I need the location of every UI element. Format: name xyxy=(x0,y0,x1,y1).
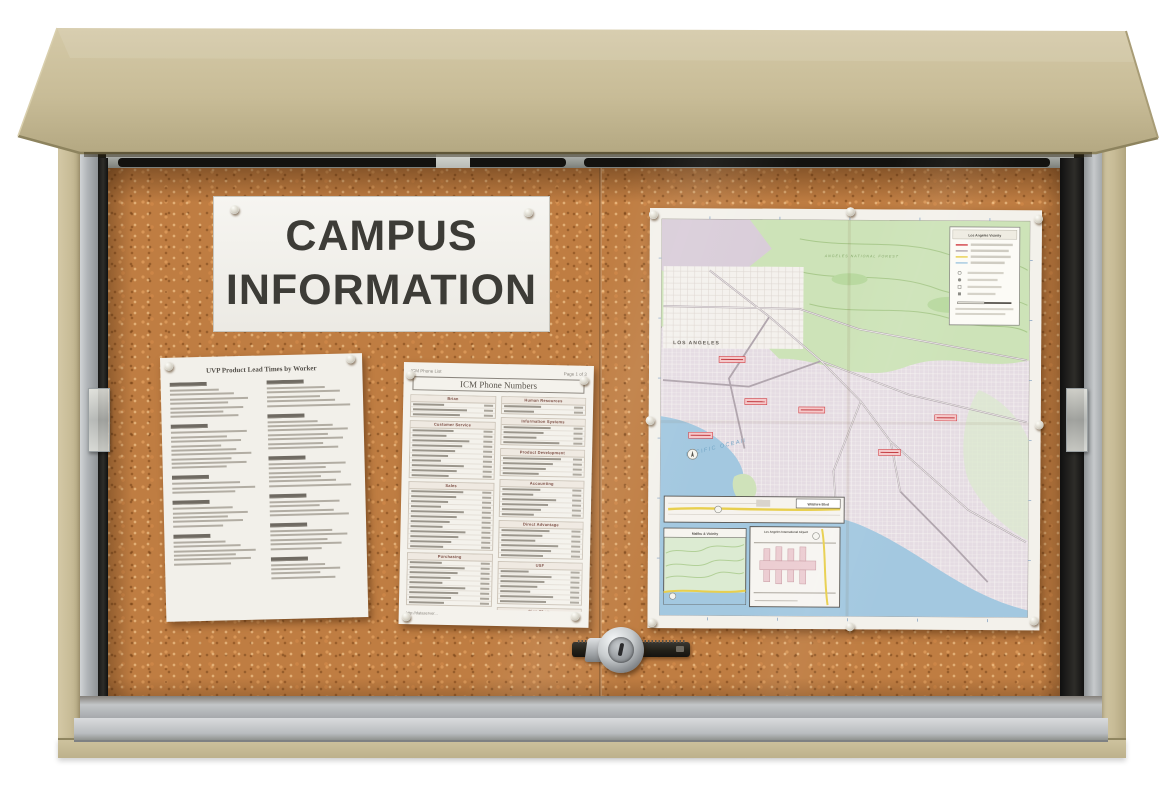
text-group xyxy=(172,499,260,528)
text-line xyxy=(170,414,238,418)
text-line xyxy=(170,389,219,392)
bottom-door-track xyxy=(80,696,1102,718)
text-line xyxy=(173,507,233,510)
text-line xyxy=(270,504,320,507)
sign-line-1: CAMPUS xyxy=(214,210,549,262)
phone-section: Information Systems xyxy=(500,417,586,447)
section-heading-line xyxy=(271,556,308,561)
section-heading-line xyxy=(172,500,209,505)
push-pin xyxy=(647,618,656,627)
lead-times-body xyxy=(170,378,359,602)
push-pin xyxy=(402,612,411,621)
cabinet-left-post xyxy=(58,140,82,756)
push-pin xyxy=(571,612,580,621)
section-heading-line xyxy=(268,455,305,460)
text-line xyxy=(270,533,347,537)
phone-row xyxy=(500,471,584,477)
push-pin xyxy=(1035,420,1044,429)
text-line xyxy=(173,540,225,543)
text-line xyxy=(170,410,223,413)
phone-section: Direct Advantage xyxy=(497,520,583,560)
text-line xyxy=(268,420,318,423)
text-line xyxy=(174,562,231,565)
text-line xyxy=(170,397,248,401)
map-inset-wilshire: Wilshire Blvd xyxy=(664,496,844,523)
phone-section: Sales xyxy=(407,481,494,551)
push-pin xyxy=(845,622,854,631)
text-line xyxy=(170,406,243,410)
lead-times-document: UVP Product Lead Times by Worker xyxy=(160,353,368,622)
text-line xyxy=(267,403,350,407)
text-group xyxy=(269,492,357,516)
text-line xyxy=(171,439,241,443)
text-group xyxy=(271,555,359,579)
text-line xyxy=(269,470,341,474)
text-line xyxy=(171,457,231,460)
text-line xyxy=(268,446,338,450)
text-line xyxy=(172,486,255,490)
map-graphic: PACIFIC OCEAN xyxy=(647,208,1042,630)
text-line xyxy=(271,547,322,550)
push-pin xyxy=(524,208,533,217)
bulletin-board-photo: CAMPUS INFORMATION UVP Product Lead Time… xyxy=(0,0,1176,795)
phone-row xyxy=(499,512,583,518)
phone-section: Customer Service xyxy=(409,420,496,480)
phone-row xyxy=(497,599,581,605)
text-line xyxy=(271,576,335,580)
inset-airport-label: Los Angeles International Airport xyxy=(764,530,808,534)
text-line xyxy=(268,428,348,432)
text-line xyxy=(267,395,320,398)
text-line xyxy=(270,512,349,516)
inset-wilshire-label: Wilshire Blvd xyxy=(807,502,828,506)
text-line xyxy=(173,515,228,518)
text-line xyxy=(174,548,256,552)
phone-doc-header-left: ICM Phone List xyxy=(411,368,442,374)
section-heading-line xyxy=(270,522,307,527)
phone-row xyxy=(498,553,582,559)
text-line xyxy=(170,393,234,397)
text-line xyxy=(269,466,326,469)
phone-doc-title: ICM Phone Numbers xyxy=(412,376,584,394)
lock-bar-end xyxy=(676,646,684,652)
push-pin xyxy=(346,354,355,363)
phone-numbers-document: ICM Phone List Page 1 of 3 ICM Phone Num… xyxy=(399,362,594,628)
text-line xyxy=(271,563,325,566)
text-group xyxy=(268,454,356,487)
cabinet-right-post xyxy=(1100,140,1126,754)
text-line xyxy=(267,399,335,403)
text-line xyxy=(171,448,236,452)
phone-row xyxy=(408,544,492,550)
right-door-pull-handle xyxy=(1066,388,1088,452)
text-line xyxy=(271,567,340,571)
text-line xyxy=(171,452,251,456)
push-pin xyxy=(230,205,239,214)
phone-section: Brian xyxy=(410,394,496,419)
map-inset-airport: Los Angeles International Airport xyxy=(750,527,840,608)
section-heading-line xyxy=(172,475,209,480)
map-inset-malibu: Malibu & Vicinity xyxy=(664,528,746,604)
text-line xyxy=(172,482,240,486)
text-line xyxy=(171,430,247,434)
text-line xyxy=(270,500,340,504)
map-forest-label: ANGELES NATIONAL FOREST xyxy=(824,254,899,258)
text-line xyxy=(269,461,346,465)
text-line xyxy=(172,490,235,494)
section-heading-line xyxy=(267,413,304,418)
text-line xyxy=(174,553,236,557)
los-angeles-map: PACIFIC OCEAN xyxy=(647,208,1042,630)
phone-section: Sign Shop xyxy=(496,607,582,612)
text-line xyxy=(268,433,328,436)
text-line xyxy=(270,529,332,533)
phone-section: Human Resources xyxy=(500,396,586,416)
text-line xyxy=(173,519,243,523)
text-line xyxy=(174,544,241,548)
text-line xyxy=(268,424,333,428)
text-group xyxy=(171,423,259,469)
campus-information-sign: CAMPUS INFORMATION xyxy=(213,196,550,332)
push-pin xyxy=(646,416,655,425)
bottom-sill xyxy=(74,718,1108,742)
text-group xyxy=(270,521,358,550)
text-group xyxy=(267,412,355,449)
left-door-pull-handle xyxy=(88,388,110,452)
text-line xyxy=(269,479,336,483)
phone-section: USF xyxy=(496,561,582,606)
map-city-label: LOS ANGELES xyxy=(673,340,720,346)
phone-doc-header: ICM Phone List Page 1 of 3 xyxy=(411,368,587,377)
text-line xyxy=(271,542,342,546)
section-heading-line xyxy=(269,493,306,498)
phone-doc-body: BrianCustomer ServiceSalesPurchasingWare… xyxy=(406,394,586,612)
phone-section: Accounting xyxy=(498,479,584,519)
text-line xyxy=(267,386,325,389)
text-line xyxy=(267,390,340,394)
text-line xyxy=(173,524,223,527)
text-line xyxy=(172,461,247,465)
push-pin xyxy=(580,376,589,385)
phone-row xyxy=(411,412,495,418)
text-group xyxy=(172,474,259,494)
phone-section-header: Sign Shop xyxy=(497,608,581,612)
text-line xyxy=(270,508,334,512)
text-group xyxy=(173,532,261,565)
section-heading-line xyxy=(267,380,304,385)
sliding-door-seam xyxy=(599,168,602,698)
section-heading-line xyxy=(170,382,207,387)
map-legend: Los Angeles Vicinity xyxy=(949,227,1020,325)
text-line xyxy=(269,483,351,487)
section-heading-line xyxy=(173,534,210,539)
phone-row xyxy=(410,473,494,479)
phone-row xyxy=(501,409,585,415)
phone-doc-footer: http://dataserver... xyxy=(406,610,582,619)
push-pin xyxy=(846,207,855,216)
phone-row xyxy=(407,600,491,606)
cabinet-roof xyxy=(0,0,1176,170)
text-line xyxy=(271,572,320,575)
inset-malibu-label: Malibu & Vicinity xyxy=(692,532,719,536)
text-line xyxy=(270,538,327,541)
phone-row xyxy=(501,440,585,446)
text-group xyxy=(170,381,258,418)
sign-line-2: INFORMATION xyxy=(214,264,549,316)
text-group xyxy=(267,378,355,407)
phone-section: Purchasing xyxy=(406,552,493,607)
push-pin xyxy=(649,210,658,219)
map-legend-title: Los Angeles Vicinity xyxy=(968,233,1001,237)
text-line xyxy=(173,511,248,515)
text-line xyxy=(172,466,227,469)
section-heading-line xyxy=(171,424,208,429)
push-pin xyxy=(1034,214,1043,223)
push-pin xyxy=(1029,616,1038,625)
text-line xyxy=(170,402,228,405)
lead-times-title: UVP Product Lead Times by Worker xyxy=(169,363,353,375)
text-line xyxy=(171,435,227,438)
phone-section: Product Development xyxy=(499,448,585,478)
text-line xyxy=(268,437,343,441)
text-line xyxy=(174,557,251,561)
text-line xyxy=(171,444,221,447)
text-line xyxy=(269,475,321,478)
text-line xyxy=(268,442,323,445)
